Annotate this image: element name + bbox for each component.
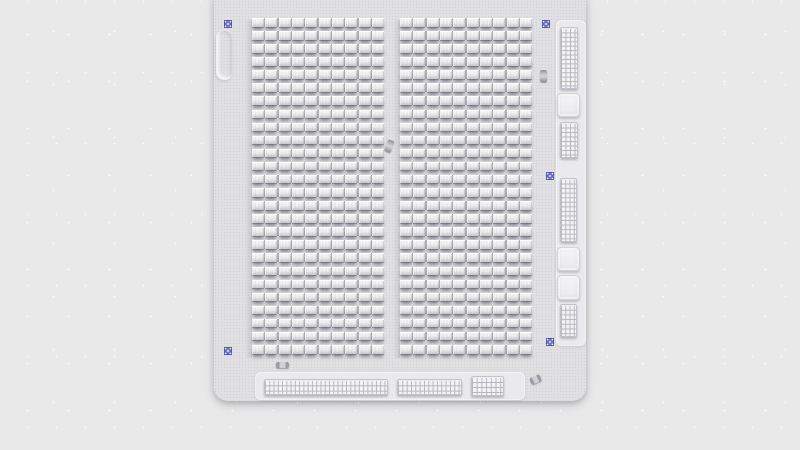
block [453, 70, 465, 79]
block [305, 345, 317, 354]
block [292, 188, 304, 197]
block [279, 293, 291, 302]
block [400, 201, 412, 210]
block [507, 240, 519, 249]
block [292, 149, 304, 158]
block [507, 83, 519, 92]
block [400, 293, 412, 302]
block [305, 175, 317, 184]
block [467, 293, 479, 302]
block [319, 31, 331, 40]
block [413, 306, 425, 315]
block [493, 188, 505, 197]
block [279, 136, 291, 145]
block [252, 18, 264, 27]
block [453, 123, 465, 132]
block [305, 253, 317, 262]
block [493, 240, 505, 249]
block [427, 345, 439, 354]
block [292, 214, 304, 223]
block [520, 162, 532, 171]
block [493, 345, 505, 354]
block [427, 227, 439, 236]
block [427, 83, 439, 92]
block [292, 136, 304, 145]
block [467, 96, 479, 105]
block [292, 201, 304, 210]
block [520, 70, 532, 79]
block [359, 293, 371, 302]
block [305, 319, 317, 328]
block-row [400, 18, 532, 27]
block [480, 70, 492, 79]
block [467, 201, 479, 210]
pin-strip-small [471, 376, 504, 396]
block [480, 227, 492, 236]
block-row [400, 306, 532, 315]
block [467, 267, 479, 276]
block [467, 136, 479, 145]
block [252, 227, 264, 236]
block [440, 227, 452, 236]
block [319, 83, 331, 92]
block [372, 188, 384, 197]
block [520, 175, 532, 184]
block [507, 332, 519, 341]
block [292, 123, 304, 132]
block [359, 57, 371, 66]
block [319, 201, 331, 210]
block [520, 319, 532, 328]
block [305, 188, 317, 197]
block [467, 110, 479, 119]
block [252, 332, 264, 341]
block [332, 149, 344, 158]
block [305, 214, 317, 223]
block [453, 227, 465, 236]
block [372, 44, 384, 53]
block [453, 280, 465, 289]
block [400, 110, 412, 119]
block [480, 240, 492, 249]
block [413, 293, 425, 302]
block [507, 57, 519, 66]
block [279, 227, 291, 236]
block-row [400, 57, 532, 66]
block [359, 110, 371, 119]
block [400, 149, 412, 158]
block [252, 110, 264, 119]
block [305, 70, 317, 79]
block [453, 319, 465, 328]
block [292, 31, 304, 40]
block [292, 240, 304, 249]
block [400, 175, 412, 184]
block-row [252, 57, 384, 66]
block [359, 18, 371, 27]
block [440, 267, 452, 276]
block [252, 83, 264, 92]
block [400, 70, 412, 79]
block [493, 306, 505, 315]
block [400, 31, 412, 40]
block [467, 123, 479, 132]
block [520, 188, 532, 197]
block [493, 44, 505, 53]
block [372, 162, 384, 171]
block [427, 319, 439, 328]
block-row [252, 123, 384, 132]
block [359, 240, 371, 249]
block [427, 96, 439, 105]
block [252, 162, 264, 171]
block-row [252, 227, 384, 236]
block [252, 57, 264, 66]
block [400, 44, 412, 53]
block-row [252, 96, 384, 105]
block [359, 96, 371, 105]
block [440, 214, 452, 223]
block [372, 332, 384, 341]
block [265, 240, 277, 249]
block [319, 280, 331, 289]
block [372, 123, 384, 132]
block [467, 188, 479, 197]
block [345, 188, 357, 197]
block [332, 214, 344, 223]
block [252, 293, 264, 302]
block [453, 214, 465, 223]
block [305, 306, 317, 315]
block [400, 306, 412, 315]
block [319, 188, 331, 197]
block [413, 345, 425, 354]
block [372, 175, 384, 184]
block [372, 267, 384, 276]
block [427, 306, 439, 315]
block [507, 18, 519, 27]
block [359, 31, 371, 40]
block [467, 149, 479, 158]
block [279, 96, 291, 105]
block-row [252, 31, 384, 40]
block [319, 110, 331, 119]
block-row [400, 70, 532, 79]
block [467, 18, 479, 27]
block [453, 345, 465, 354]
block [252, 136, 264, 145]
block-row [400, 240, 532, 249]
block [400, 227, 412, 236]
block [332, 280, 344, 289]
block [467, 227, 479, 236]
block [345, 332, 357, 341]
block-row [400, 44, 532, 53]
block [279, 175, 291, 184]
right-block-array [400, 18, 532, 358]
block [345, 280, 357, 289]
block [520, 96, 532, 105]
block [480, 96, 492, 105]
block [279, 110, 291, 119]
block [480, 306, 492, 315]
block [413, 57, 425, 66]
block [345, 214, 357, 223]
block [480, 332, 492, 341]
block [292, 18, 304, 27]
block [345, 267, 357, 276]
block [332, 240, 344, 249]
block-row [252, 267, 384, 276]
block [493, 110, 505, 119]
block [480, 18, 492, 27]
block [413, 110, 425, 119]
block [427, 18, 439, 27]
block [252, 267, 264, 276]
block [507, 70, 519, 79]
block [345, 345, 357, 354]
block [507, 319, 519, 328]
block [292, 162, 304, 171]
block-row [252, 240, 384, 249]
block [292, 253, 304, 262]
fiducial-top-right [542, 20, 550, 28]
block [345, 201, 357, 210]
block [265, 280, 277, 289]
block [507, 44, 519, 53]
block [493, 214, 505, 223]
block [507, 110, 519, 119]
block [467, 175, 479, 184]
block [467, 253, 479, 262]
block [359, 201, 371, 210]
block [413, 319, 425, 328]
block [480, 345, 492, 354]
block-row [400, 188, 532, 197]
block [480, 149, 492, 158]
block [332, 70, 344, 79]
block [480, 57, 492, 66]
block [413, 123, 425, 132]
block [507, 96, 519, 105]
block [520, 123, 532, 132]
block-row [400, 83, 532, 92]
chip-bottom-left [276, 362, 289, 368]
block [427, 293, 439, 302]
block [332, 227, 344, 236]
block [493, 162, 505, 171]
block [265, 70, 277, 79]
block [413, 240, 425, 249]
block-row [400, 136, 532, 145]
block [265, 123, 277, 132]
block [372, 136, 384, 145]
block [319, 240, 331, 249]
block [345, 136, 357, 145]
block [480, 280, 492, 289]
block [279, 57, 291, 66]
block [332, 57, 344, 66]
block [440, 96, 452, 105]
block [520, 306, 532, 315]
block [345, 227, 357, 236]
block [440, 70, 452, 79]
block [480, 110, 492, 119]
block [507, 214, 519, 223]
block [427, 149, 439, 158]
block [305, 136, 317, 145]
block [520, 332, 532, 341]
block [305, 57, 317, 66]
block [265, 253, 277, 262]
block [453, 188, 465, 197]
block [279, 319, 291, 328]
block [427, 240, 439, 249]
block [265, 267, 277, 276]
block [493, 96, 505, 105]
block [345, 306, 357, 315]
block [345, 70, 357, 79]
block [359, 188, 371, 197]
block [493, 18, 505, 27]
block [319, 149, 331, 158]
block [453, 110, 465, 119]
block [427, 44, 439, 53]
block [467, 57, 479, 66]
block [265, 345, 277, 354]
block [359, 123, 371, 132]
block [467, 332, 479, 341]
block [345, 96, 357, 105]
block [305, 240, 317, 249]
block [359, 227, 371, 236]
block-row [400, 214, 532, 223]
block [453, 162, 465, 171]
render-scene [0, 0, 800, 450]
block [252, 31, 264, 40]
block [493, 267, 505, 276]
block [279, 18, 291, 27]
block [279, 44, 291, 53]
block [440, 280, 452, 289]
block [265, 136, 277, 145]
block [400, 332, 412, 341]
block-row [400, 345, 532, 354]
block [265, 31, 277, 40]
block [507, 267, 519, 276]
block [413, 332, 425, 341]
block [467, 214, 479, 223]
block-row [252, 83, 384, 92]
block [480, 293, 492, 302]
block [359, 345, 371, 354]
block-row [400, 319, 532, 328]
block [520, 280, 532, 289]
block-row [400, 123, 532, 132]
block [279, 332, 291, 341]
block [372, 280, 384, 289]
block [252, 175, 264, 184]
block [345, 293, 357, 302]
block [427, 31, 439, 40]
block [413, 267, 425, 276]
block [400, 267, 412, 276]
block [359, 319, 371, 328]
block [413, 188, 425, 197]
block [467, 280, 479, 289]
block [319, 136, 331, 145]
block [332, 319, 344, 328]
block [427, 136, 439, 145]
block [413, 253, 425, 262]
block [265, 306, 277, 315]
block [265, 18, 277, 27]
block [400, 253, 412, 262]
block [520, 267, 532, 276]
block [319, 175, 331, 184]
block [265, 162, 277, 171]
block [292, 293, 304, 302]
block [427, 162, 439, 171]
block [359, 175, 371, 184]
block [413, 162, 425, 171]
block [427, 214, 439, 223]
block [359, 149, 371, 158]
block [493, 175, 505, 184]
block [480, 267, 492, 276]
block [440, 201, 452, 210]
block [507, 227, 519, 236]
block-row [400, 96, 532, 105]
block [265, 96, 277, 105]
block [252, 345, 264, 354]
block [252, 240, 264, 249]
block [332, 267, 344, 276]
block [345, 57, 357, 66]
block [507, 293, 519, 302]
block [413, 149, 425, 158]
block [319, 227, 331, 236]
block [400, 123, 412, 132]
block-row [400, 149, 532, 158]
block [252, 319, 264, 328]
block [319, 319, 331, 328]
pad-square-mid [557, 247, 580, 271]
block [427, 110, 439, 119]
block [400, 319, 412, 328]
block [453, 31, 465, 40]
block [400, 136, 412, 145]
block [319, 96, 331, 105]
block [252, 96, 264, 105]
block-row [400, 201, 532, 210]
block [440, 83, 452, 92]
block [453, 136, 465, 145]
block [493, 201, 505, 210]
block [252, 188, 264, 197]
block [305, 110, 317, 119]
block [345, 110, 357, 119]
block [413, 44, 425, 53]
block [453, 175, 465, 184]
block [305, 18, 317, 27]
block-row [252, 253, 384, 262]
block [279, 345, 291, 354]
block [520, 253, 532, 262]
block [427, 267, 439, 276]
block [480, 201, 492, 210]
block [332, 293, 344, 302]
